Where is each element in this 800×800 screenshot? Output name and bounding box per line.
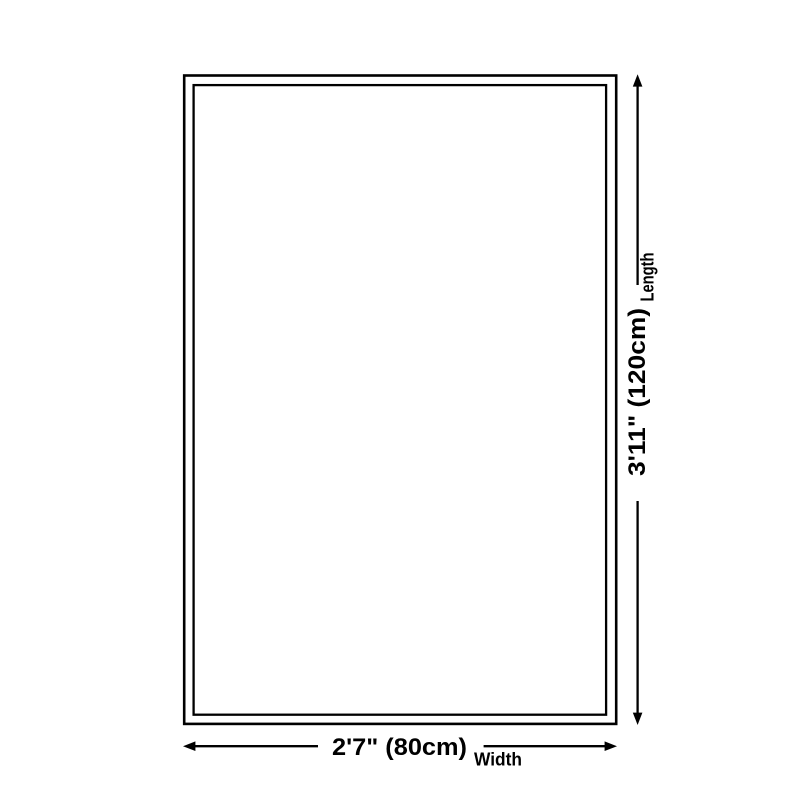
svg-text:Width: Width <box>474 750 522 770</box>
svg-text:2'7" (80cm): 2'7" (80cm) <box>332 734 467 761</box>
svg-text:Length: Length <box>638 253 658 302</box>
svg-text:3'11" (120cm): 3'11" (120cm) <box>624 308 651 476</box>
